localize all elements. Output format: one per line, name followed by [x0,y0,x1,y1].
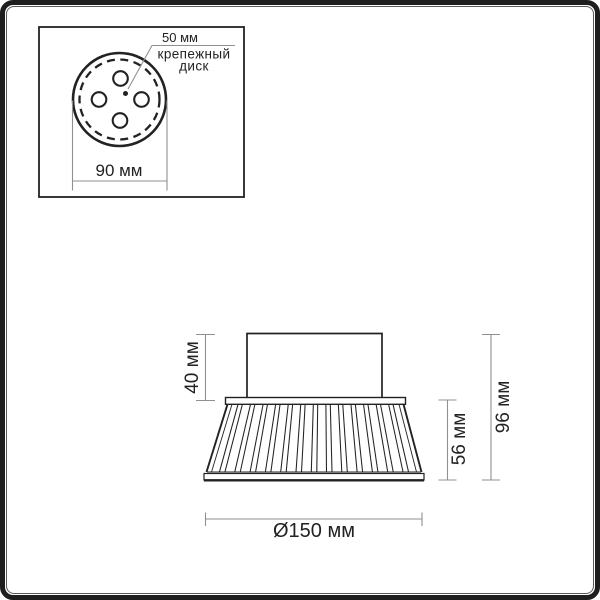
dimension-mount-height: 40 мм [182,335,215,401]
shade-rib-line [368,405,378,472]
label-shade-height: 56 мм [449,413,470,466]
side-view: 40 мм 56 мм 96 мм Ø150 мм [182,334,514,543]
shade-rib-line [330,405,332,472]
label-disk-width: 90 мм [95,161,142,180]
shade-left-edge [207,404,228,472]
label-part-line2: диск [179,59,209,74]
label-total-height: 96 мм [493,381,514,434]
shade-rib-line [376,405,388,472]
mount-hole-top [113,71,128,86]
dimension-diameter: Ø150 мм [206,513,423,543]
shade-rib-line [271,405,280,472]
top-view-inset: 50 мм крепежный диск 90 мм [39,27,244,197]
shade-right-edge-inner [399,404,417,472]
shade-bottom-rim [204,474,424,481]
mount-hole-right [134,92,149,107]
shade-rib-line [302,405,306,472]
shade-rib-line [338,405,341,472]
mount-hole-bottom [113,113,128,128]
shade-rib-line [343,405,348,472]
mount-hole-left [92,92,107,107]
shade-rib-line [296,405,301,472]
shade-rib-line [265,405,275,472]
shade-rib-line [317,405,318,472]
shade-top-rim [226,398,406,405]
label-diameter: Ø150 мм [273,520,355,542]
dimension-total-height: 96 мм [482,335,514,481]
shade-ribs [220,405,409,472]
fixture-dimension-screenshot: { "colors": { "background": "#ffffff", "… [0,0,600,600]
technical-drawing-canvas: 50 мм крепежный диск 90 мм [0,0,600,600]
shade-rib-line [225,405,242,472]
label-center-spacing: 50 мм [162,30,198,45]
mount-box [247,334,382,399]
label-mount-height: 40 мм [182,341,203,394]
shade-rib-line [326,405,327,472]
shade-rib-line [311,405,313,472]
disk-outline [73,53,166,146]
dimension-shade-height: 56 мм [439,400,471,480]
mounting-disk-top-view [73,53,166,146]
disk-center-dot [123,91,128,96]
shade-rib-line [364,405,373,472]
